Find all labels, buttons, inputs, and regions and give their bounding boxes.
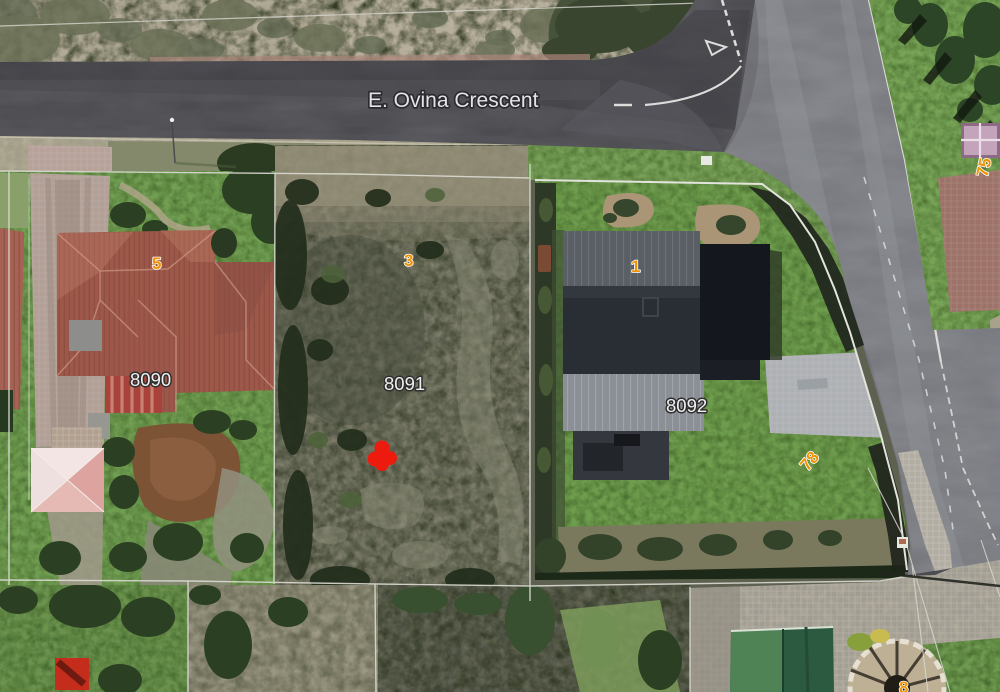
svg-text:3: 3 (404, 251, 413, 270)
svg-text:5: 5 (152, 254, 161, 273)
svg-text:75: 75 (973, 156, 996, 178)
svg-text:8: 8 (899, 678, 908, 692)
svg-text:8092: 8092 (666, 395, 707, 416)
svg-text:8090: 8090 (130, 369, 171, 390)
svg-text:1: 1 (631, 257, 640, 276)
svg-text:8091: 8091 (384, 373, 425, 394)
svg-text:E. Ovina Crescent: E. Ovina Crescent (368, 89, 539, 112)
